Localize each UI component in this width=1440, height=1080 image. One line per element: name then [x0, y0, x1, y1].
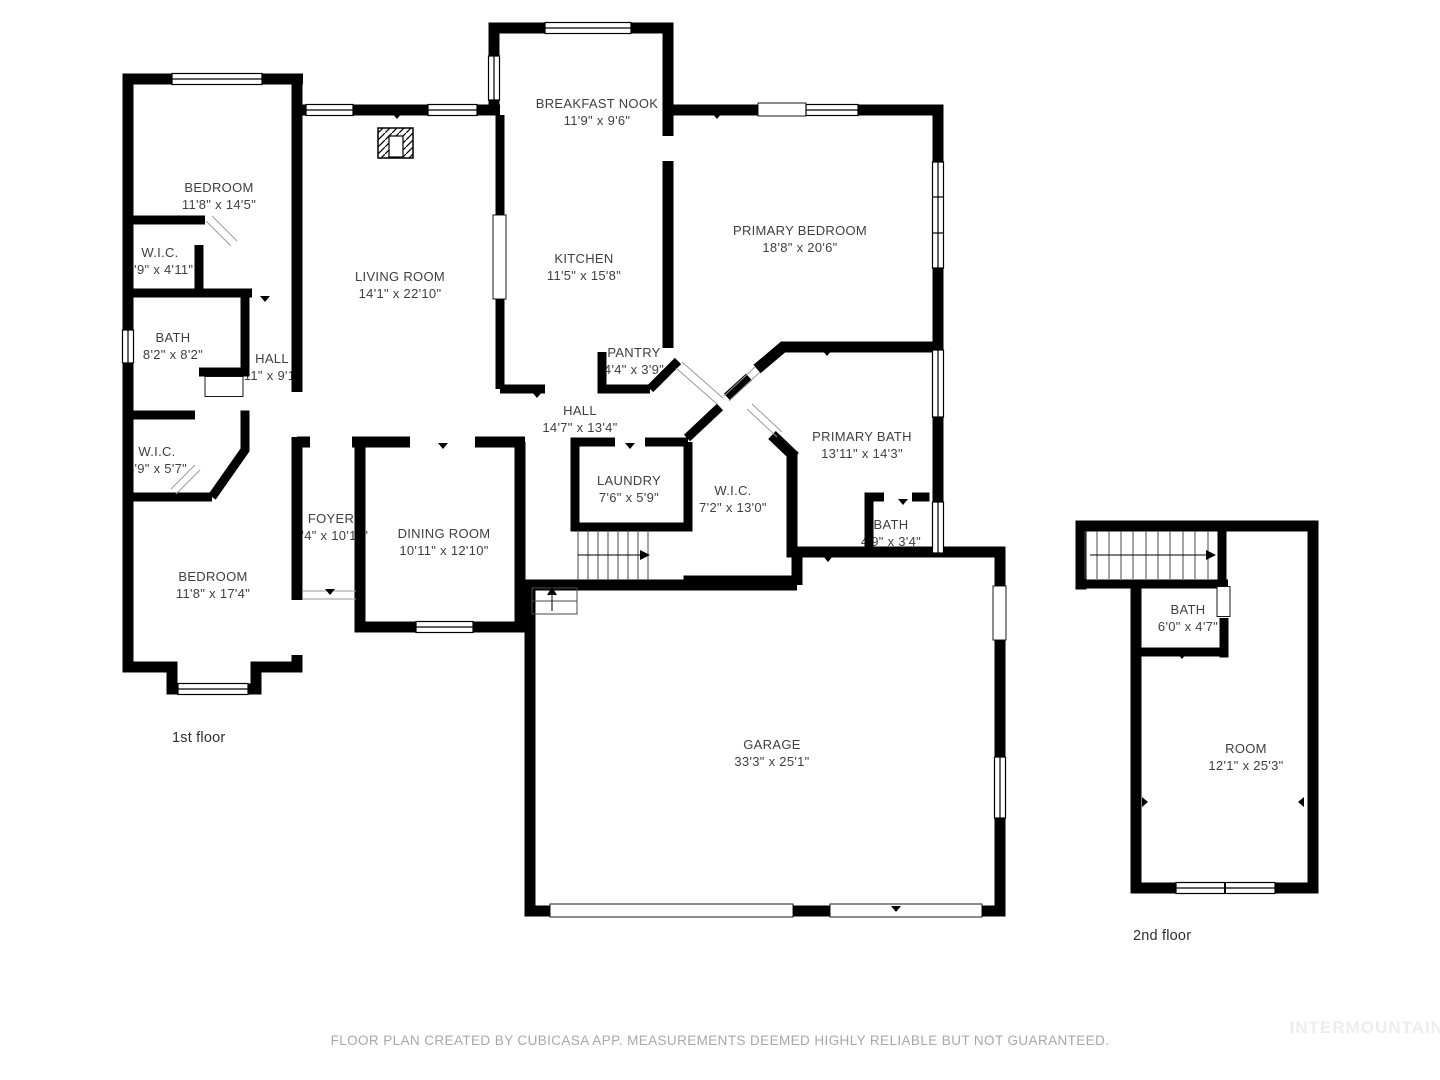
room-label-hall-1: HALL11" x 9'1" [244, 350, 300, 384]
first-floor-label: 1st floor [172, 730, 225, 746]
room-label-breakfast-nook: BREAKFAST NOOK11'9" x 9'6" [536, 95, 658, 129]
room-label-bedroom-2: BEDROOM11'8" x 17'4" [176, 568, 250, 602]
exterior-walls [128, 23, 1319, 917]
room-label-room-2nd: ROOM12'1" x 25'3" [1208, 740, 1283, 774]
disclaimer-text: FLOOR PLAN CREATED BY CUBICASA APP. MEAS… [0, 1033, 1440, 1048]
stairs-first-floor [532, 530, 650, 614]
interior-walls [124, 115, 1229, 658]
room-label-living-room: LIVING ROOM14'1" x 22'10" [355, 268, 445, 302]
window-symbols [123, 23, 1276, 894]
room-label-foyer: FOYER4'4" x 10'11" [294, 510, 368, 544]
room-label-primary-bedroom: PRIMARY BEDROOM18'8" x 20'6" [733, 222, 867, 256]
room-label-bedroom-1: BEDROOM11'8" x 14'5" [182, 179, 256, 213]
second-floor-label: 2nd floor [1133, 928, 1191, 944]
room-label-dining-room: DINING ROOM10'11" x 12'10" [398, 525, 491, 559]
room-label-laundry: LAUNDRY7'6" x 5'9" [597, 472, 661, 506]
room-label-wic-2: W.I.C.4'9" x 5'7" [127, 443, 187, 477]
floorplan-canvas [0, 0, 1440, 1080]
fireplace-icon [378, 128, 413, 158]
floor-plan-page: BEDROOM11'8" x 14'5" W.I.C.4'9" x 4'11" … [0, 0, 1440, 1080]
room-label-garage: GARAGE33'3" x 25'1" [734, 736, 809, 770]
watermark-text: INTERMOUNTAIN [1290, 1018, 1440, 1038]
room-label-wic-3: W.I.C.7'2" x 13'0" [699, 482, 767, 516]
room-label-bath-3: BATH6'0" x 4'7" [1158, 601, 1218, 635]
room-label-pantry: PANTRY4'4" x 3'9" [604, 344, 664, 378]
room-label-wic-1: W.I.C.4'9" x 4'11" [127, 244, 194, 278]
room-label-bath-1: BATH8'2" x 8'2" [143, 329, 203, 363]
room-label-kitchen: KITCHEN11'5" x 15'8" [547, 250, 621, 284]
room-label-bath-2: BATH4'9" x 3'4" [861, 516, 921, 550]
room-label-hall-2: HALL14'7" x 13'4" [542, 402, 617, 436]
room-label-primary-bath: PRIMARY BATH13'11" x 14'3" [812, 428, 912, 462]
stairs-second-floor [1085, 531, 1216, 579]
